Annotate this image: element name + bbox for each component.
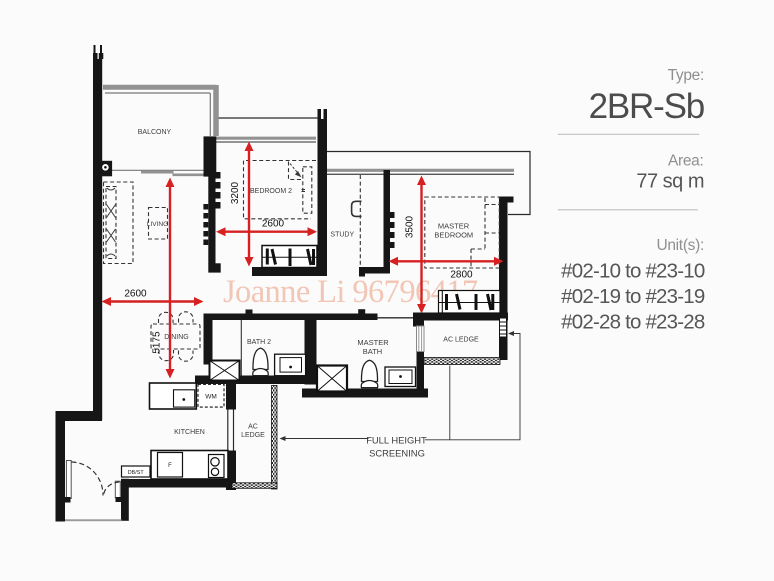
svg-text:2600: 2600 <box>262 219 285 230</box>
svg-text:BEDROOM 2: BEDROOM 2 <box>250 188 292 195</box>
svg-text:2800: 2800 <box>450 270 473 281</box>
svg-text:#02-19 to #23-19: #02-19 to #23-19 <box>561 285 705 308</box>
svg-text:77 sq m: 77 sq m <box>636 171 704 193</box>
svg-text:BATH 2: BATH 2 <box>247 339 271 346</box>
svg-text:5175: 5175 <box>152 331 163 354</box>
svg-text:BALCONY: BALCONY <box>138 129 172 136</box>
svg-text:2BR-Sb: 2BR-Sb <box>589 87 704 126</box>
svg-text:MASTER: MASTER <box>438 222 470 231</box>
svg-text:BEDROOM: BEDROOM <box>434 231 473 240</box>
svg-text:F: F <box>168 463 172 469</box>
svg-text:2600: 2600 <box>124 289 147 300</box>
svg-text:BATH: BATH <box>363 347 382 356</box>
svg-text:AC: AC <box>248 424 258 431</box>
svg-text:3200: 3200 <box>230 181 241 204</box>
svg-text:FULL HEIGHT: FULL HEIGHT <box>366 435 427 446</box>
svg-text:MASTER: MASTER <box>357 338 389 347</box>
svg-text:KITCHEN: KITCHEN <box>174 429 205 436</box>
svg-text:LIVING: LIVING <box>147 221 168 228</box>
svg-text:LEDGE: LEDGE <box>241 432 265 439</box>
svg-text:DB/ST: DB/ST <box>128 470 145 476</box>
svg-text:AC LEDGE: AC LEDGE <box>443 337 479 344</box>
svg-text:#02-28 to #23-28: #02-28 to #23-28 <box>561 311 705 334</box>
svg-text:Area:: Area: <box>668 153 704 170</box>
svg-text:#02-10 to #23-10: #02-10 to #23-10 <box>561 260 705 283</box>
svg-text:SCREENING: SCREENING <box>369 448 425 459</box>
svg-text:3500: 3500 <box>405 215 416 238</box>
svg-text:Unit(s):: Unit(s): <box>656 237 704 254</box>
svg-text:Type:: Type: <box>668 67 704 84</box>
svg-text:STUDY: STUDY <box>330 232 354 239</box>
svg-text:WM: WM <box>205 394 217 401</box>
svg-text:DINING: DINING <box>164 334 189 341</box>
